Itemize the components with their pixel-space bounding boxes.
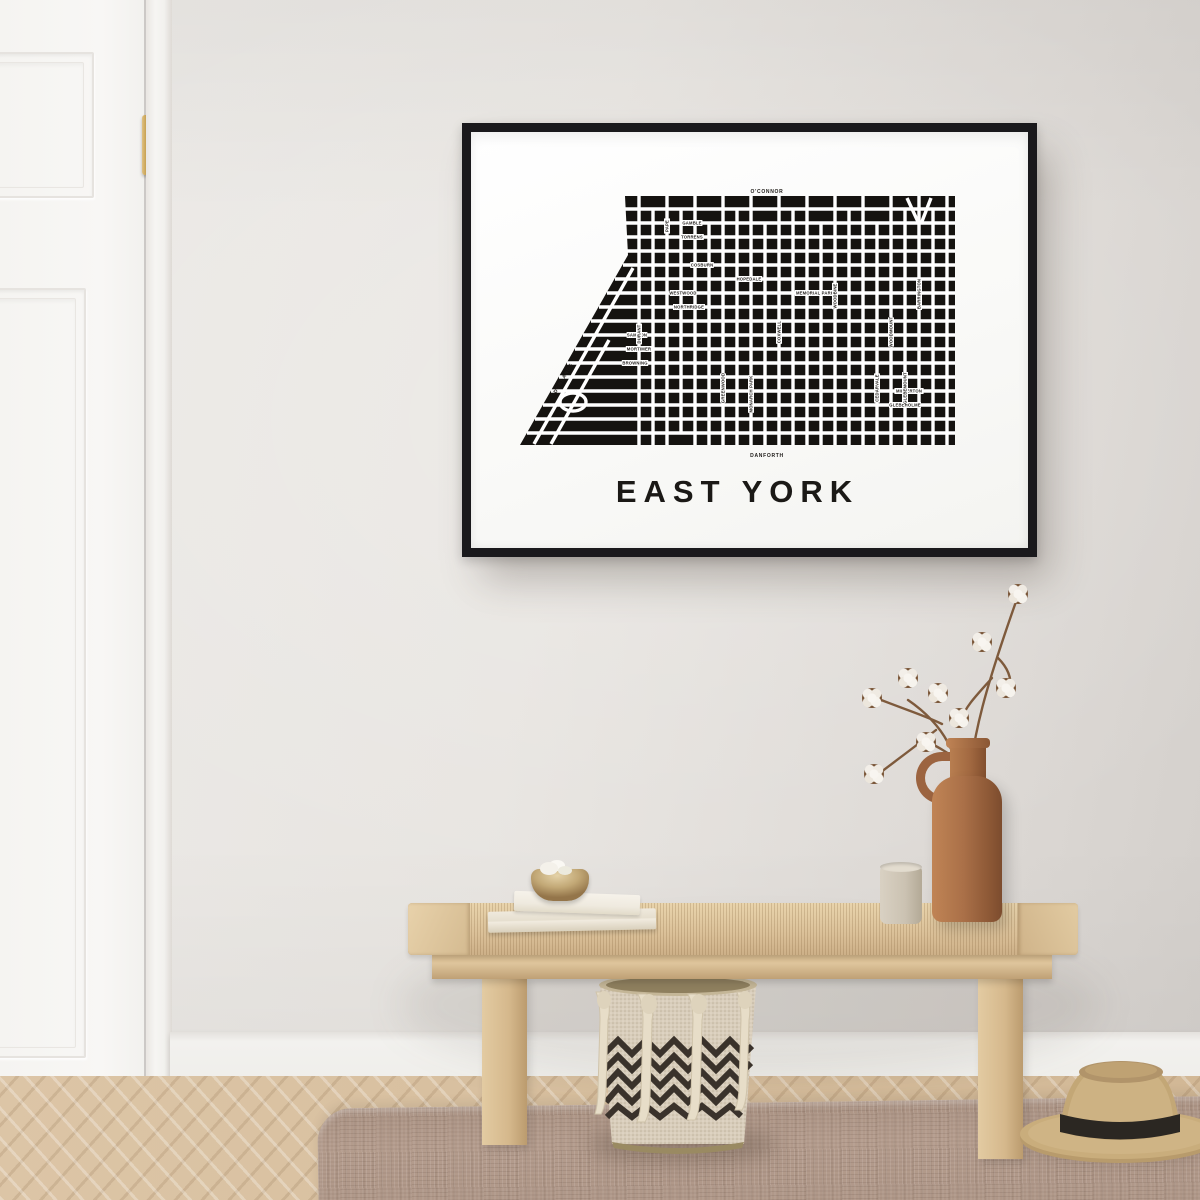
svg-text:WOODBINE: WOODBINE [833, 283, 838, 308]
svg-text:MONARCH PARK: MONARCH PARK [749, 376, 754, 413]
bench-leg-left [482, 977, 527, 1145]
brass-trinket-bowl[interactable] [531, 869, 589, 901]
svg-text:TORRENS: TORRENS [681, 235, 703, 240]
svg-text:PAPE: PAPE [665, 220, 670, 232]
svg-text:COXWELL: COXWELL [777, 321, 782, 344]
door-panel-upper [0, 52, 94, 198]
door-casing [146, 0, 172, 1080]
door-panel-lower [0, 288, 86, 1058]
bowl-contents [540, 862, 558, 875]
svg-text:GAMBLE: GAMBLE [682, 221, 701, 226]
ceramic-mug[interactable] [880, 866, 922, 924]
svg-text:MAIN: MAIN [957, 324, 958, 340]
vase-rim [946, 738, 990, 748]
street-map-graphic: GAMBLETORRENSCOSBURNHOPEDALEWESTWOODMEMO… [517, 182, 958, 459]
svg-text:HOPEDALE: HOPEDALE [737, 277, 762, 282]
east-york-map-poster: GAMBLETORRENSCOSBURNHOPEDALEWESTWOODMEMO… [471, 132, 1028, 548]
svg-text:CEDARVALE: CEDARVALE [875, 374, 880, 401]
svg-text:MEMORIAL PARK: MEMORIAL PARK [796, 291, 834, 296]
svg-text:MORTIMER: MORTIMER [627, 347, 651, 352]
straw-hat[interactable] [1016, 1044, 1200, 1168]
svg-text:COSBURN: COSBURN [691, 263, 714, 268]
svg-text:GLEBEMOUNT: GLEBEMOUNT [903, 372, 908, 404]
paneled-door [0, 0, 146, 1078]
svg-text:WOODMOUNT: WOODMOUNT [889, 316, 894, 347]
clay-jug-vase[interactable] [932, 776, 1002, 922]
svg-text:DANFORTH: DANFORTH [750, 453, 784, 459]
svg-text:NORTHRIDGE: NORTHRIDGE [674, 305, 704, 310]
bench-seat-end-left [408, 903, 470, 955]
black-picture-frame: GAMBLETORRENSCOSBURNHOPEDALEWESTWOODMEMO… [462, 123, 1037, 557]
svg-text:WESTWOOD: WESTWOOD [669, 291, 696, 296]
svg-text:O'CONNOR: O'CONNOR [751, 189, 784, 195]
svg-text:DURANT: DURANT [637, 324, 642, 343]
bench-seat-end-right [1018, 903, 1078, 955]
poster-title: EAST YORK [517, 474, 958, 510]
svg-text:BARRINGTON: BARRINGTON [917, 279, 922, 309]
bench-apron [432, 953, 1052, 979]
room-scene: GAMBLETORRENSCOSBURNHOPEDALEWESTWOODMEMO… [0, 0, 1200, 1200]
svg-text:GREENWOOD: GREENWOOD [721, 373, 726, 403]
svg-text:MILVERTON: MILVERTON [896, 389, 922, 394]
svg-text:BROWNING: BROWNING [622, 361, 647, 366]
chevron-tassel-basket [592, 970, 764, 1156]
